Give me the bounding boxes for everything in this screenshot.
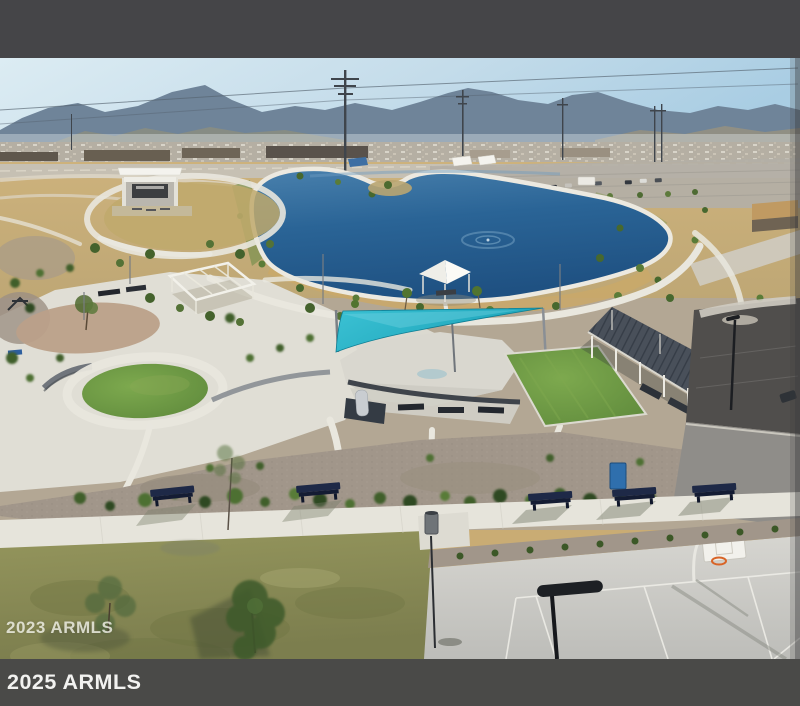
trash-receptacle	[418, 511, 470, 550]
silver-tank	[355, 390, 369, 417]
right-edge-vignette	[790, 58, 800, 659]
top-letterbox-bar	[0, 0, 800, 58]
aerial-park-photo: 2023 ARMLS	[0, 58, 800, 659]
bottom-watermark-bar: 2025 ARMLS	[0, 659, 800, 706]
screenshot-root: 2023 ARMLS 2025 ARMLS	[0, 0, 800, 706]
photo-canvas	[0, 58, 800, 659]
watermark-2025: 2025 ARMLS	[0, 659, 800, 706]
splash-pad	[340, 332, 522, 424]
white-rv	[578, 177, 595, 185]
watermark-2023: 2023 ARMLS	[6, 618, 113, 638]
